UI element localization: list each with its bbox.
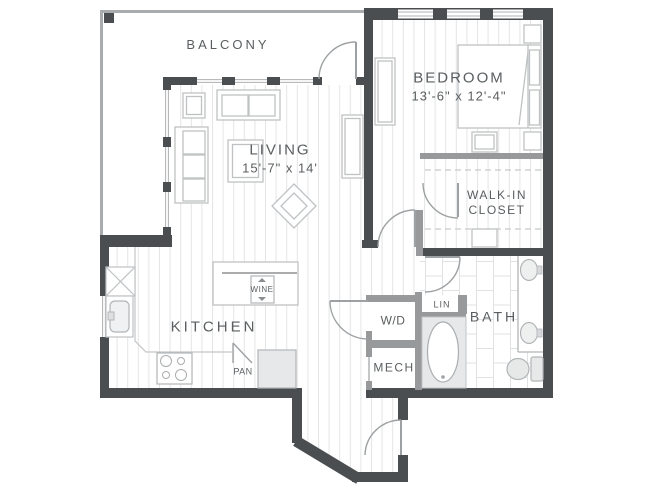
- chest: [472, 132, 497, 152]
- room-label-wine: WINE: [251, 285, 274, 295]
- stove: [157, 353, 192, 384]
- nightstand: [524, 132, 541, 150]
- loveseat: [217, 90, 280, 120]
- balcony-door: [319, 42, 356, 79]
- faucet: [108, 312, 114, 320]
- kitchen-sink: [106, 296, 133, 337]
- sofa: [175, 127, 208, 203]
- closet-label-line2: CLOSET: [467, 203, 527, 218]
- room-label-living: LIVING 15'-7" x 14': [242, 142, 318, 177]
- living-name: LIVING: [242, 142, 318, 161]
- vanity-sink: [521, 260, 538, 281]
- toilet-tank: [531, 357, 543, 381]
- window-glazing: [197, 80, 313, 83]
- room-label-lin: LIN: [433, 299, 450, 310]
- room-label-mech: MECH: [373, 361, 414, 376]
- burner: [178, 358, 185, 365]
- refrigerator: [258, 350, 296, 388]
- living-dimensions: 15'-7" x 14': [242, 160, 318, 176]
- dresser: [375, 58, 395, 125]
- toilet: [507, 357, 543, 381]
- window-glazing: [166, 90, 169, 227]
- room-label-pan: PAN: [233, 366, 252, 377]
- bedroom-name: BEDROOM: [412, 70, 507, 89]
- faucet: [537, 329, 542, 337]
- end-table: [183, 93, 205, 118]
- room-label-bedroom: BEDROOM 13'-6" x 12'-4": [412, 70, 507, 105]
- room-label-walk-in-closet: WALK-IN CLOSET: [467, 188, 527, 218]
- burner: [161, 356, 172, 367]
- bedroom-dimensions: 13'-6" x 12'-4": [412, 88, 507, 104]
- burner: [163, 372, 170, 379]
- vanity-sink: [521, 323, 538, 344]
- toilet-bowl: [507, 359, 529, 380]
- kitchen-island: [213, 262, 298, 305]
- tub-drain: [441, 375, 445, 379]
- closet-label-line1: WALK-IN: [467, 188, 527, 203]
- room-label-kitchen: KITCHEN: [171, 319, 258, 338]
- console-table: [342, 115, 363, 178]
- burner: [176, 370, 187, 381]
- vanity: [518, 256, 543, 352]
- room-label-balcony: BALCONY: [186, 37, 269, 53]
- faucet: [537, 266, 542, 274]
- bathtub: [422, 317, 466, 388]
- floorplan-canvas: BALCONY LIVING 15'-7" x 14' BEDROOM 13'-…: [0, 0, 650, 490]
- nightstand: [524, 25, 541, 43]
- floorplan-drawing: [0, 0, 650, 490]
- room-label-bath: BATH: [470, 308, 518, 326]
- room-label-wd: W/D: [381, 314, 406, 329]
- corner-cabinet: [106, 267, 135, 296]
- closet-shelf: [472, 229, 497, 247]
